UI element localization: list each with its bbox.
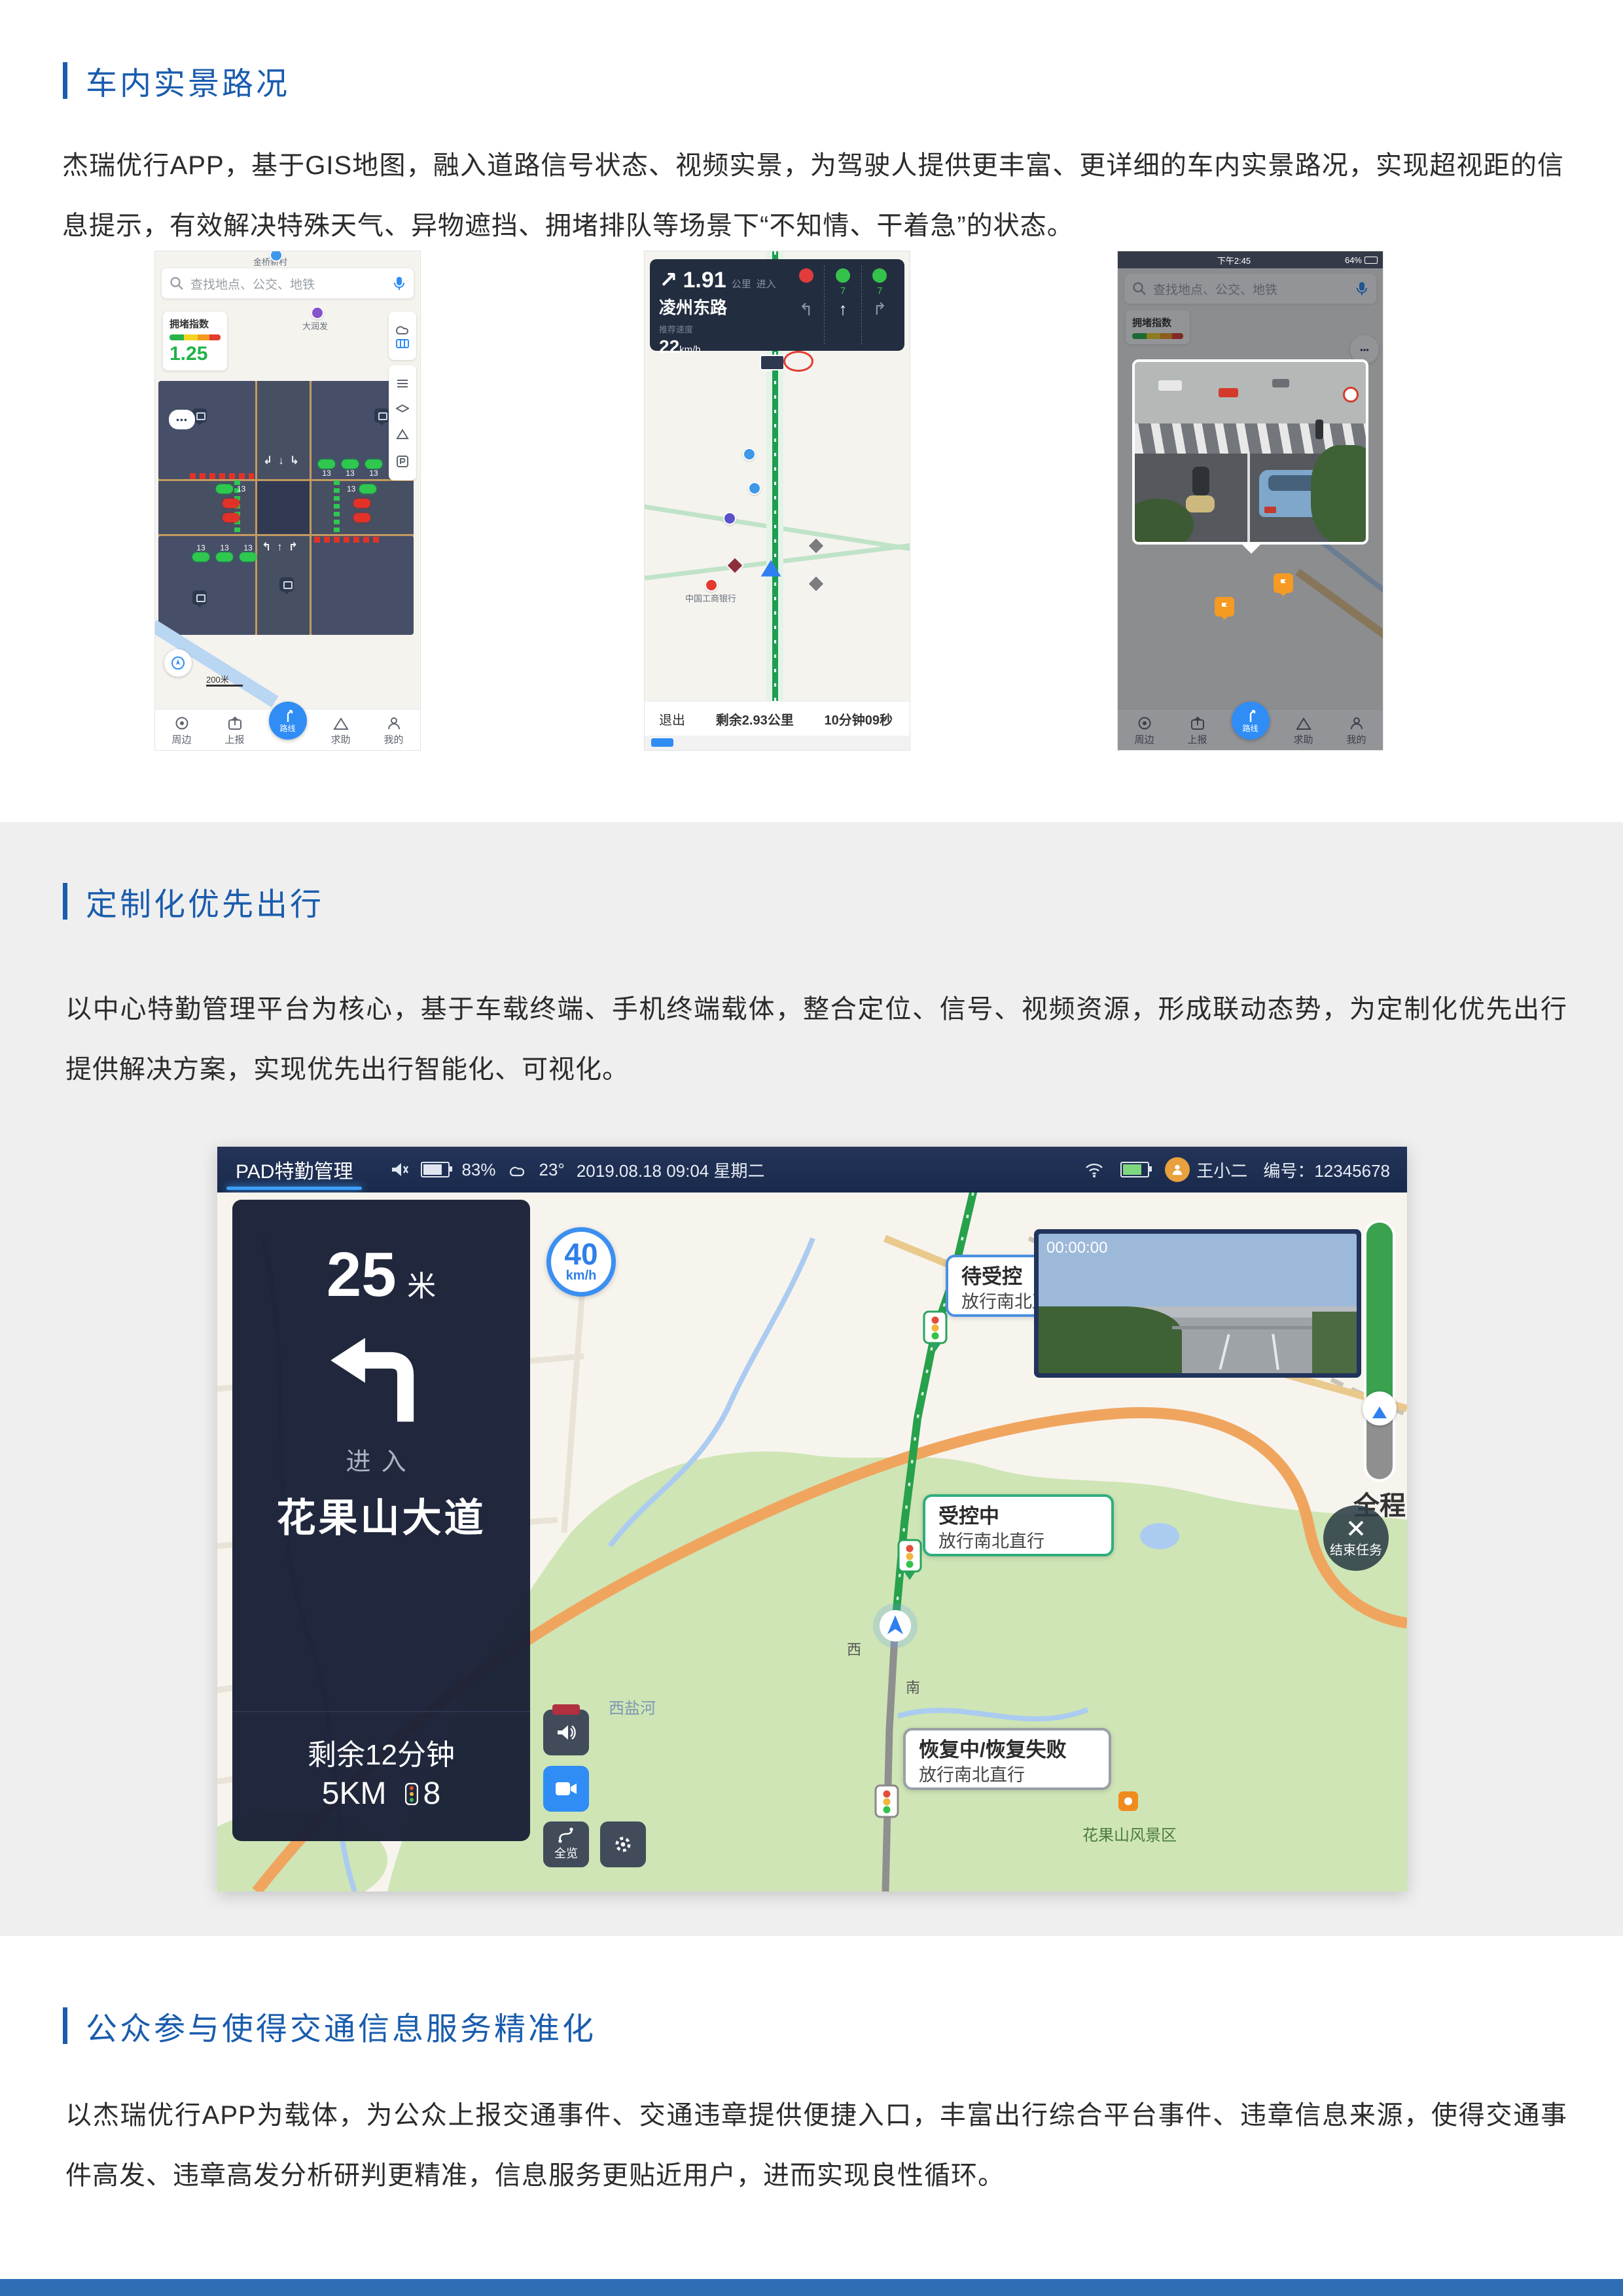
lane-arrows-bottom: ↰↑↱ xyxy=(262,541,304,554)
section2-title: 定制化优先出行 xyxy=(86,878,324,924)
help-icon xyxy=(333,717,349,730)
layers-icon xyxy=(396,404,409,414)
battery-icon xyxy=(421,1162,450,1177)
turn-arrow-icon: ↗ xyxy=(659,267,678,293)
section1-title: 车内实景路况 xyxy=(86,58,290,103)
intersection-signal-overlay: ↲↓↳ ↰↑↱ 13 13 13 13 13 13 13 13 xyxy=(158,381,414,635)
overview-button[interactable]: 全览 xyxy=(543,1821,589,1867)
congestion-value: 1.25 xyxy=(169,343,221,365)
scooter-rider xyxy=(1192,467,1209,495)
weather-icon xyxy=(395,323,410,336)
signal-group-west: 13 xyxy=(216,484,245,522)
pad-top-bar: PAD特勤管理 83% 23° 2019.08.18 09:04 星期二 王小二 xyxy=(217,1147,1407,1193)
search-icon xyxy=(169,276,184,291)
heading-accent-bar xyxy=(63,883,67,920)
end-task-button[interactable]: 结束任务 xyxy=(1323,1505,1389,1571)
document-page: 车内实景路况 杰瑞优行APP，基于GIS地图，融入道路信号状态、视频实景，为驾驶… xyxy=(0,0,1623,2296)
bushes xyxy=(1311,445,1368,543)
warning-icon xyxy=(396,429,409,440)
status-bar: 下午2:45 64% xyxy=(1118,251,1383,268)
search-input[interactable]: 查找地点、公交、地铁 xyxy=(162,268,414,298)
nav-item-help[interactable]: 求助 xyxy=(314,709,367,750)
route-icon xyxy=(281,708,294,723)
flag-icon xyxy=(1220,602,1229,611)
map-shortcut-buttons[interactable] xyxy=(389,365,416,480)
recommended-speed: 22 xyxy=(659,336,679,357)
phone-screenshot-navigation: 中国工商银行 ↗ 1.91 公里 进入 凌州东路 推荐速度 22km/h ↰ xyxy=(645,251,910,750)
signal-marker xyxy=(807,537,825,555)
around-icon xyxy=(175,716,189,730)
vehicle xyxy=(1158,380,1182,391)
report-icon xyxy=(228,716,242,730)
parking-icon xyxy=(397,456,408,467)
battery-icon xyxy=(1364,257,1378,264)
locate-button[interactable] xyxy=(164,649,192,677)
pad-special-duty-screenshot: PAD特勤管理 83% 23° 2019.08.18 09:04 星期二 王小二 xyxy=(217,1147,1407,1892)
video-button[interactable] xyxy=(543,1766,589,1812)
pad-nav-panel: 25 米 进入 花果山大道 剩余12分钟 5KM 8 xyxy=(232,1200,530,1841)
voice-button[interactable] xyxy=(543,1710,589,1755)
target-road: 花果山大道 xyxy=(232,1486,530,1543)
signal-lane-panel: ↰ 7 ↑ 7 ↱ xyxy=(788,266,898,344)
signal-group-east: 13 xyxy=(347,484,376,522)
signal-marker xyxy=(726,556,744,575)
nav-item-report[interactable]: 上报 xyxy=(208,709,261,750)
flag-icon xyxy=(1279,579,1288,588)
direction-label-west: 西 xyxy=(847,1641,861,1658)
section2-heading: 定制化优先出行 xyxy=(63,878,324,924)
weather-icon xyxy=(508,1162,527,1177)
pad-user-code: 编号：12345678 xyxy=(1263,1158,1390,1182)
map-attribution-strip xyxy=(645,736,910,750)
camera-marker-icon xyxy=(279,577,294,592)
live-video-overlay[interactable]: 00:00:00 xyxy=(1034,1229,1361,1378)
camera-icon xyxy=(555,1781,577,1797)
mic-icon[interactable] xyxy=(393,276,406,291)
green-light-icon xyxy=(872,268,887,283)
camera-marker-icon xyxy=(374,408,389,423)
route-icon xyxy=(1244,708,1257,723)
event-flag-marker[interactable] xyxy=(1274,573,1293,593)
route-overview-icon xyxy=(558,1827,575,1843)
congestion-label: 拥堵指数 xyxy=(169,317,221,331)
signal-marker-restore xyxy=(876,1785,898,1817)
phone-screenshot-signal-map: 金桥新村 查找地点、公交、地铁 大润发 拥堵指数 1.25 xyxy=(155,251,420,750)
voice-status-badge xyxy=(552,1704,580,1715)
nav-instruction-card: ↗ 1.91 公里 进入 凌州东路 推荐速度 22km/h ↰ 7 ↑ xyxy=(650,259,904,351)
lane-arrows-top: ↲↓↳ xyxy=(263,454,305,467)
chat-bubble-icon: ••• xyxy=(169,410,195,429)
vehicle xyxy=(1219,388,1238,397)
no-entry-sign xyxy=(1343,387,1359,403)
live-camera-popup[interactable] xyxy=(1132,359,1368,545)
route-progress-bar[interactable] xyxy=(1366,1223,1393,1479)
vehicle xyxy=(1272,379,1289,387)
popup-pointer xyxy=(1242,545,1260,563)
weather-tool-button[interactable] xyxy=(389,312,416,360)
gear-icon xyxy=(613,1835,633,1854)
battery-icon xyxy=(1120,1162,1149,1177)
footer-accent-band xyxy=(0,2279,1623,2296)
map-scale: 200米 xyxy=(206,673,229,685)
heading-accent-bar xyxy=(63,2007,67,2044)
status-time: 下午2:45 xyxy=(1123,254,1345,266)
remaining-distance: 剩余2.93公里 xyxy=(685,709,825,728)
wifi-icon xyxy=(1084,1161,1105,1178)
user-icon xyxy=(387,716,401,730)
user-icon xyxy=(1171,1163,1184,1176)
exit-button[interactable]: 退出 xyxy=(659,709,685,728)
heading-accent-bar xyxy=(63,62,67,99)
battery-percent: 64% xyxy=(1345,255,1362,265)
status-bubble-restore: 恢复中/恢复失败 放行南北直行 xyxy=(903,1728,1111,1790)
pad-temperature: 23° xyxy=(539,1160,565,1180)
trees xyxy=(1039,1306,1182,1373)
direction-label-south: 南 xyxy=(906,1679,920,1696)
mute-icon xyxy=(391,1161,409,1178)
section1-paragraph: 杰瑞优行APP，基于GIS地图，融入道路信号状态、视频实景，为驾驶人提供更丰富、… xyxy=(62,135,1564,256)
nav-item-route[interactable]: 路线 xyxy=(1232,702,1270,740)
red-light-icon xyxy=(799,268,813,283)
distance-remaining-row: 5KM 8 xyxy=(232,1776,530,1812)
close-icon xyxy=(1346,1518,1366,1538)
turn-distance: 1.91 xyxy=(683,268,726,293)
pad-datetime: 2019.08.18 09:04 星期二 xyxy=(577,1158,765,1182)
pad-tab[interactable]: PAD特勤管理 xyxy=(217,1147,371,1193)
list-icon xyxy=(396,378,409,389)
congestion-index-card: 拥堵指数 1.25 xyxy=(163,312,227,370)
map-tools-column xyxy=(389,312,416,480)
traffic-layer-icon xyxy=(395,338,410,349)
poi-label-bank: 中国工商银行 xyxy=(685,592,736,604)
speaker-icon xyxy=(556,1723,576,1742)
search-placeholder: 查找地点、公交、地铁 xyxy=(190,275,393,293)
turn-left-arrow-icon xyxy=(319,1321,444,1426)
current-position-marker xyxy=(764,554,778,573)
eta: 10分钟09秒 xyxy=(825,709,893,728)
time-remaining: 剩余12分钟 xyxy=(232,1731,530,1773)
pedestrian xyxy=(1315,420,1323,439)
compass-icon xyxy=(171,656,185,670)
video-timestamp: 00:00:00 xyxy=(1046,1239,1107,1257)
section3-heading: 公众参与使得交通信息服务精准化 xyxy=(63,2003,596,2049)
progress-position-marker xyxy=(1363,1391,1397,1426)
camera-marker-icon xyxy=(192,590,207,605)
map-label-river: 西盐河 xyxy=(609,1695,656,1718)
signal-group-north: 13 13 13 xyxy=(318,459,382,478)
nav-bottom-bar: 退出 剩余2.93公里 10分钟09秒 xyxy=(645,701,910,736)
nav-item-route[interactable]: 路线 xyxy=(269,702,307,740)
nav-item-around[interactable]: 周边 xyxy=(155,709,208,750)
user-chip[interactable]: 王小二 xyxy=(1165,1157,1247,1182)
signal-group-south: 13 13 13 xyxy=(192,543,257,562)
pad-battery: 83% xyxy=(461,1160,495,1180)
section3-paragraph: 以杰瑞优行APP为载体，为公众上报交通事件、交通违章提供便捷入口，丰富出行综合平… xyxy=(65,2085,1567,2206)
event-flag-marker[interactable] xyxy=(1215,597,1234,617)
congestion-gradient-bar xyxy=(169,334,221,340)
panel-divider xyxy=(232,1711,530,1712)
phone-screenshot-live-camera: 查找地点、公交、地铁 拥堵指数 ••• 周边 上报 . 求助 xyxy=(1118,251,1383,750)
lights-count: 8 xyxy=(423,1776,441,1812)
enter-label: 进入 xyxy=(232,1441,530,1477)
section1-heading: 车内实景路况 xyxy=(63,58,290,103)
signal-marker xyxy=(807,575,825,593)
settings-button[interactable] xyxy=(600,1821,646,1867)
avatar xyxy=(1165,1157,1190,1182)
current-position-marker xyxy=(873,1604,918,1648)
map-label: 大润发 xyxy=(302,319,328,332)
nav-item-mine[interactable]: 我的 xyxy=(367,709,420,750)
speed-limit-sign: 40 km/h xyxy=(546,1227,616,1297)
traffic-light-icon xyxy=(405,1783,418,1805)
scenic-marker xyxy=(1118,1791,1138,1811)
section2-paragraph: 以中心特勤管理平台为核心，基于车载终端、手机终端载体，整合定位、信号、视频资源，… xyxy=(65,979,1567,1100)
status-bubble-controlled: 受控中 放行南北直行 xyxy=(923,1494,1114,1556)
green-light-icon xyxy=(836,268,850,283)
pad-user: 王小二 xyxy=(1196,1158,1247,1182)
turn-distance: 25 xyxy=(327,1240,397,1310)
section3-title: 公众参与使得交通信息服务精准化 xyxy=(86,2003,596,2049)
map-label-scenic: 花果山风景区 xyxy=(1082,1822,1177,1845)
